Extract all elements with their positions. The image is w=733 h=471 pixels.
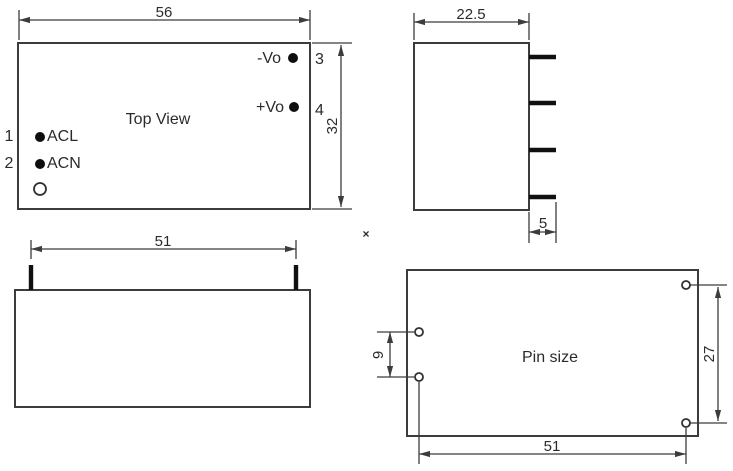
pin-size-view: Pin size 9 27 51 xyxy=(370,270,727,464)
front-span-dim-label: 51 xyxy=(155,233,172,250)
pin-3-number: 3 xyxy=(315,51,324,68)
pin-hole-top-right-icon xyxy=(682,281,690,289)
top-view: 56 32 Top View 1 ACL 2 ACN xyxy=(5,4,352,209)
stray-x-marker: × xyxy=(362,227,369,241)
top-view-title: Top View xyxy=(126,111,191,128)
front-view: 51 xyxy=(15,233,310,407)
pin-2-label: ACN xyxy=(47,155,81,172)
pin-1-label: ACL xyxy=(47,128,78,145)
front-view-pin-span-dimension: 51 xyxy=(31,233,296,259)
side-view: 22.5 5 xyxy=(414,6,556,243)
front-view-outline xyxy=(15,290,310,407)
pin-span-dim-label: 51 xyxy=(544,438,561,455)
width-dim-label: 56 xyxy=(156,4,173,21)
side-view-width-dimension: 22.5 xyxy=(414,6,529,40)
pin-1-number: 1 xyxy=(5,128,14,145)
pin-4-number: 4 xyxy=(315,102,324,119)
top-view-width-dimension: 56 xyxy=(19,4,310,40)
mounting-hole-icon xyxy=(34,183,46,195)
pin-1-dot-icon xyxy=(35,132,45,142)
side-width-dim-label: 22.5 xyxy=(456,6,485,23)
pin-length-dim-label: 5 xyxy=(539,215,547,232)
pin-2-number: 2 xyxy=(5,155,14,172)
pin-4-dot-icon xyxy=(289,102,299,112)
pin-size-title: Pin size xyxy=(522,349,578,366)
right-pitch-dim-label: 27 xyxy=(701,346,718,363)
pin-hole-bottom-right-icon xyxy=(682,419,690,427)
side-view-outline xyxy=(414,43,529,210)
pin-hole-top-left-icon xyxy=(415,328,423,336)
side-view-pin-length-dimension: 5 xyxy=(529,202,556,243)
pin-3-label: -Vo xyxy=(257,50,281,67)
mechanical-drawing-canvas: 56 32 Top View 1 ACL 2 ACN xyxy=(0,0,733,471)
pin-3-dot-icon xyxy=(288,53,298,63)
pin-hole-bottom-left-icon xyxy=(415,373,423,381)
left-pitch-dim-label: 9 xyxy=(370,351,387,359)
pin-4-label: +Vo xyxy=(256,99,284,116)
pin-2-dot-icon xyxy=(35,159,45,169)
height-dim-label: 32 xyxy=(324,118,341,135)
power-module-dimension-drawing: 56 32 Top View 1 ACL 2 ACN xyxy=(0,0,733,471)
